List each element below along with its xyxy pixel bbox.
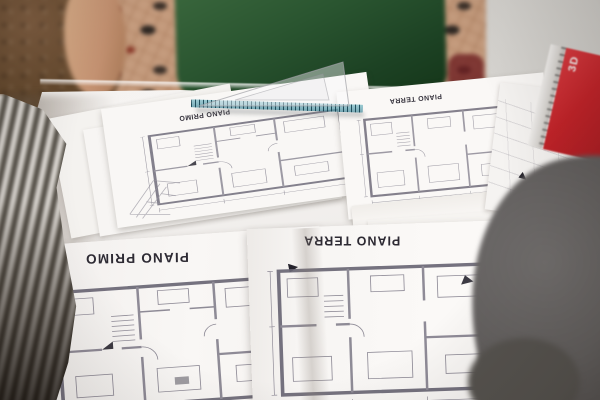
plan-title-upper-right: PIANO TERRA [389, 92, 442, 104]
set-square-triangle [197, 58, 359, 112]
photo-scene: PIANO PRIMO PIANO TERRA [0, 0, 600, 400]
book-spine-text: 3D [566, 55, 581, 73]
stair-detail-sketch [118, 166, 194, 223]
plan-title-lower-left: PIANO PRIMO [85, 250, 189, 267]
